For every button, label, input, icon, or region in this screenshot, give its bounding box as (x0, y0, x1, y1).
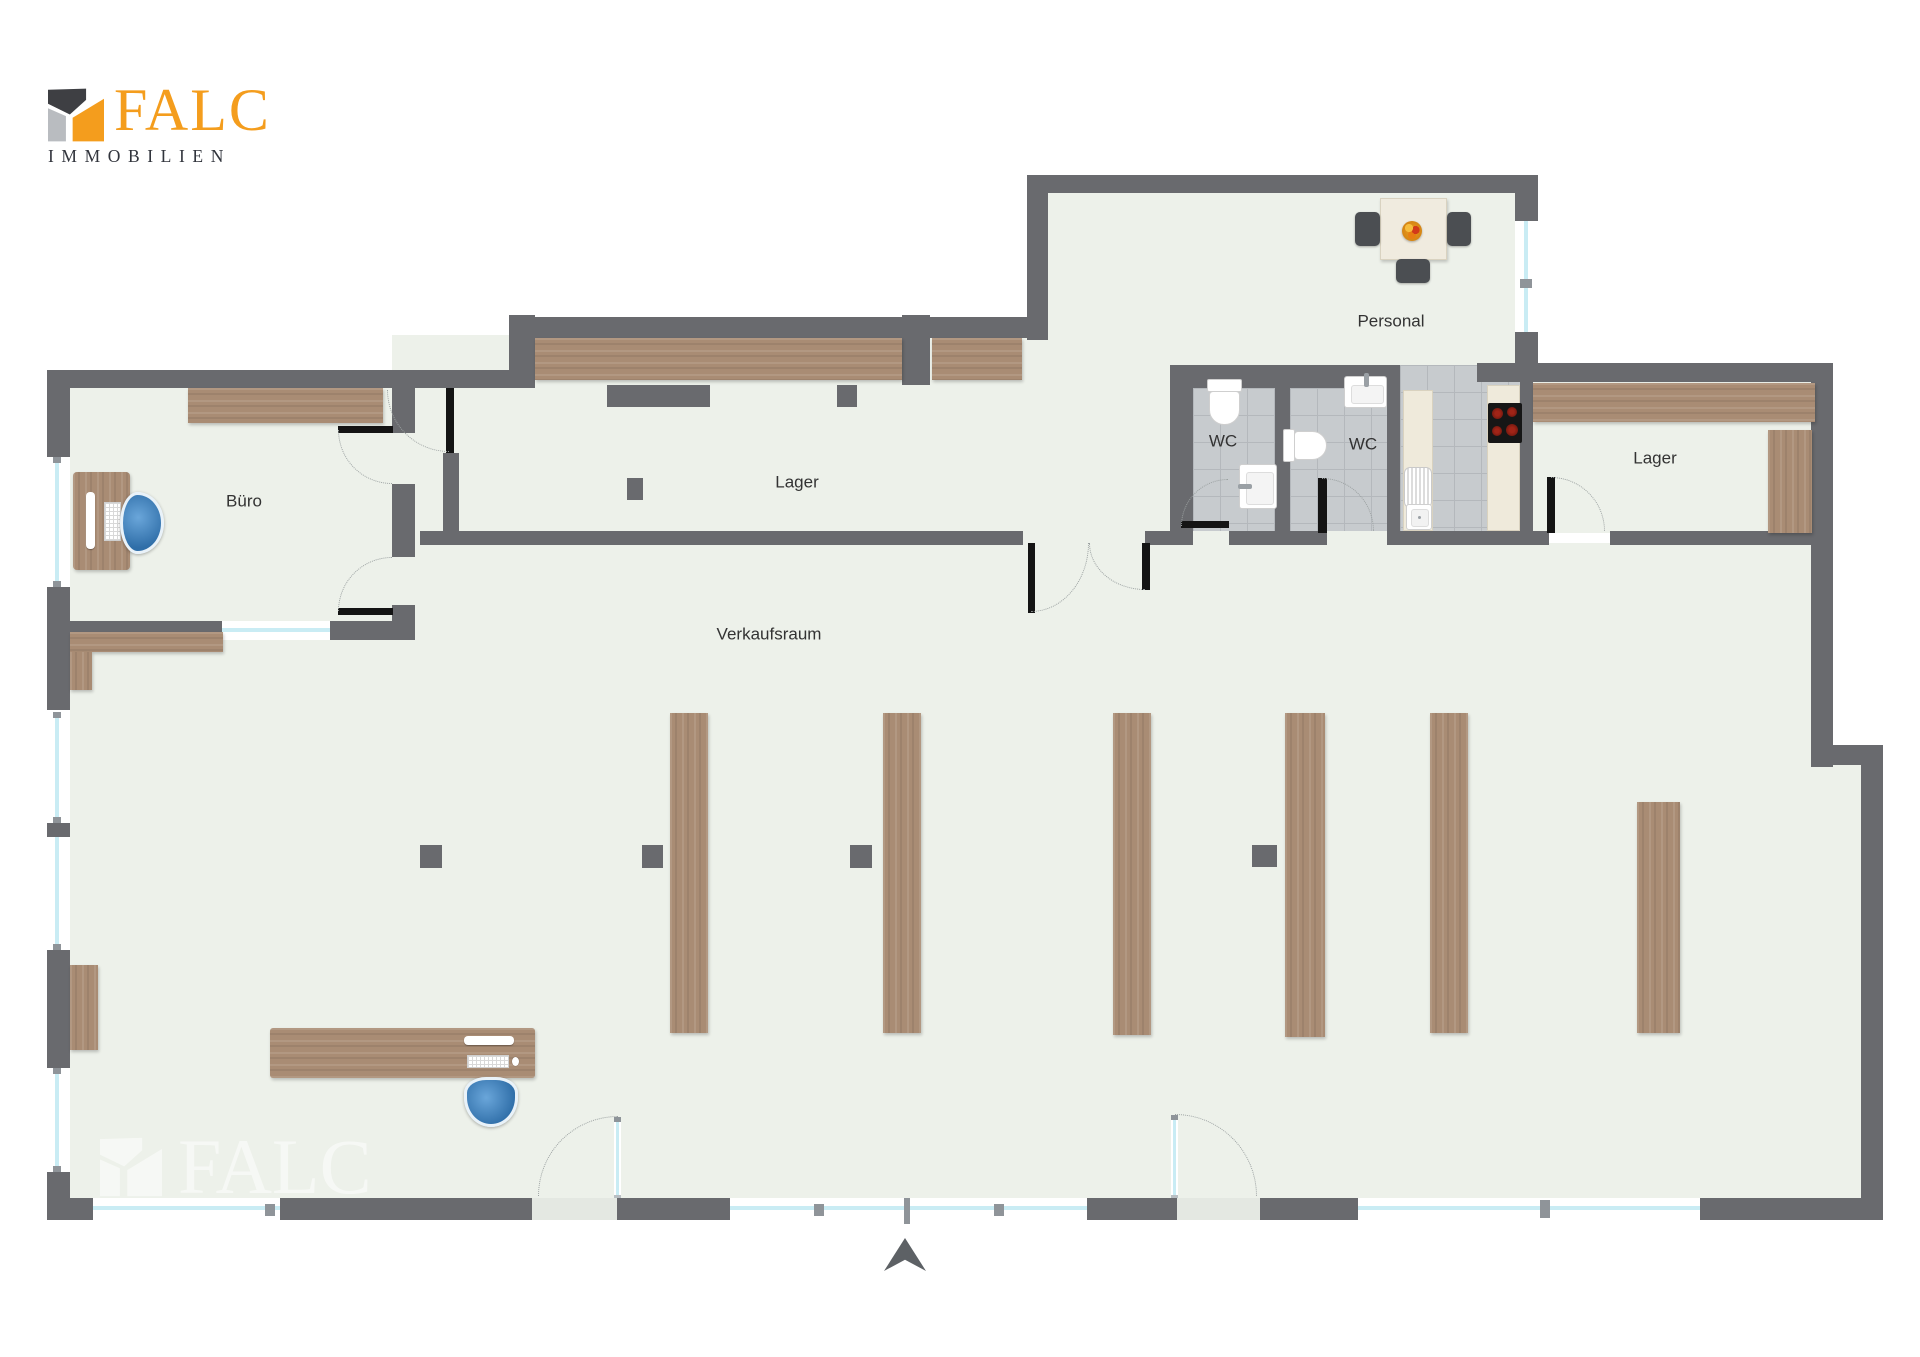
window (47, 712, 70, 823)
wall (1087, 1198, 1177, 1220)
floor-doorway-1 (532, 1198, 617, 1220)
kitchen-boiler (1404, 467, 1432, 508)
window (222, 621, 330, 640)
fruit-bowl (1402, 221, 1422, 241)
room-label-wc-left: WC (1209, 433, 1237, 450)
chair (1355, 212, 1380, 246)
keyboard (467, 1055, 509, 1068)
column (642, 845, 663, 868)
north-arrow-icon (884, 1238, 926, 1271)
sink (1239, 464, 1277, 509)
counter-lager (607, 385, 710, 407)
wall (1610, 531, 1815, 545)
room-label-personal: Personal (1357, 313, 1424, 330)
column (420, 845, 442, 868)
brand-logo-subtext: IMMOBILIEN (48, 148, 231, 166)
stove (1488, 403, 1522, 443)
column (1252, 845, 1277, 867)
brand-logo-text: FALC (114, 80, 271, 140)
wall (392, 484, 415, 557)
room-label-buero: Büro (226, 493, 262, 510)
wall (1260, 1198, 1358, 1220)
shelf-aisle-2 (883, 713, 921, 1033)
monitor (86, 492, 95, 549)
toilet-bowl (1209, 391, 1240, 425)
wall (443, 453, 459, 533)
chair (1396, 259, 1430, 283)
wall (1515, 363, 1833, 382)
wall (1515, 175, 1538, 221)
wall (617, 1198, 730, 1220)
wall (517, 317, 1048, 338)
wall (47, 1198, 93, 1220)
floor-plan: FALC IMMOBILIEN FALC (0, 0, 1920, 1357)
toilet-bowl (1294, 431, 1327, 460)
shelf-lager-top-2 (932, 338, 1022, 380)
wall-pier (902, 315, 930, 385)
kitchen-sink (1406, 504, 1432, 530)
brand-watermark: FALC (100, 1128, 372, 1206)
wall (1387, 388, 1400, 531)
wall (1027, 175, 1048, 340)
floor-doorway-2 (1177, 1198, 1260, 1220)
shelf-lager-top-1 (535, 338, 902, 380)
shelf-buero (188, 388, 383, 423)
shelf-left-wall (70, 965, 98, 1050)
wall (420, 531, 1023, 545)
watermark-text: FALC (178, 1128, 372, 1206)
wall (1477, 363, 1520, 382)
monitor (464, 1036, 514, 1045)
wall (1515, 332, 1538, 366)
window (47, 457, 70, 587)
window (47, 837, 70, 950)
shelf-lager-right-top (1533, 383, 1815, 422)
sink (1344, 376, 1387, 408)
wall (47, 370, 70, 457)
wall (1027, 175, 1538, 193)
shelf-aisle-1 (670, 713, 708, 1033)
chair (1447, 212, 1471, 246)
room-label-lager-top: Lager (775, 474, 818, 491)
shelf-aisle-4 (1285, 713, 1325, 1037)
window (730, 1198, 1087, 1220)
floor-salesroom (70, 543, 1811, 1198)
shelf-left-l-horizontal (70, 632, 223, 652)
wall (392, 605, 415, 640)
mouse (512, 1057, 519, 1066)
room-label-wc-right: WC (1349, 436, 1377, 453)
wall (280, 1198, 532, 1220)
shelf-aisle-5 (1430, 713, 1468, 1033)
column (627, 478, 643, 500)
wall (47, 587, 70, 710)
brand-logo: FALC IMMOBILIEN (48, 80, 348, 172)
room-label-lager-right: Lager (1633, 450, 1676, 467)
wall (47, 370, 535, 388)
window (93, 1198, 280, 1220)
floor-salesroom-east (1811, 765, 1862, 1198)
column (850, 845, 872, 868)
wall (1229, 531, 1327, 545)
window (1358, 1198, 1700, 1220)
wall (1700, 1198, 1883, 1220)
window (1515, 221, 1538, 332)
wall (1811, 363, 1833, 767)
window (47, 1068, 70, 1172)
shelf-left-l-vertical (70, 652, 92, 690)
watermark-logo-icon (100, 1131, 162, 1203)
wall (47, 823, 70, 837)
room-label-verkaufsraum: Verkaufsraum (717, 626, 822, 643)
falc-logo-icon (48, 82, 104, 148)
column (837, 385, 857, 407)
wall (1520, 363, 1533, 545)
wall (1861, 745, 1883, 1220)
shelf-lager-right-side (1768, 430, 1812, 533)
keyboard (104, 502, 121, 541)
shelf-aisle-short (1637, 802, 1680, 1033)
wall (47, 950, 70, 1068)
shelf-aisle-3 (1113, 713, 1151, 1035)
